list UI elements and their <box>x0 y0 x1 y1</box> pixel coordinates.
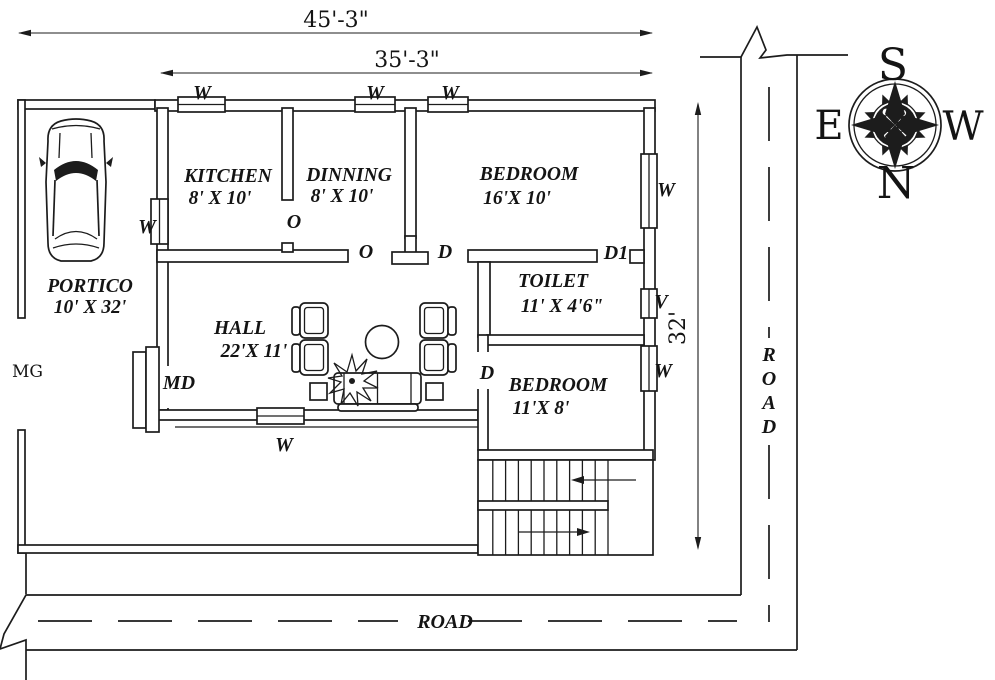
dim-overall-width-label: 45'-3" <box>303 8 369 33</box>
bedroom1-label: BEDROOM <box>479 164 579 185</box>
toilet-label: TOILET <box>518 271 589 292</box>
kitchen-label: KITCHEN <box>183 166 273 187</box>
compass-north-label: N <box>877 158 916 209</box>
arrowhead <box>640 30 653 36</box>
armchair <box>292 340 328 375</box>
hall-label: HALL <box>213 318 266 339</box>
armchair <box>292 303 328 338</box>
opening-marker: O <box>359 241 373 263</box>
opening-marker: O <box>287 211 301 233</box>
road-bottom <box>0 553 797 680</box>
arrowhead <box>18 30 31 36</box>
hall-furniture <box>292 303 456 411</box>
floor-plan: S E W N 45'-3" 35'-3" 32' KITCHEN 8' X 1… <box>0 0 995 680</box>
compass-rose: S E W N <box>814 40 983 209</box>
side-table <box>426 383 443 400</box>
compass-east-label: E <box>814 103 843 149</box>
compass-west-label: W <box>942 104 983 150</box>
road-break-top <box>700 27 848 58</box>
door-threshold <box>392 252 428 264</box>
bedroom2-label: BEDROOM <box>508 375 608 396</box>
yard-left-wall <box>18 430 25 553</box>
portico-size: 10' X 32' <box>54 297 127 318</box>
toilet-bottom-wall <box>487 335 644 345</box>
toilet-top-wall <box>468 250 597 262</box>
door1-marker: D1 <box>603 242 628 264</box>
door-marker: D <box>479 362 494 384</box>
dinning-size: 8' X 10' <box>311 186 374 207</box>
arrowhead <box>695 102 701 115</box>
wall-stub-d1 <box>630 250 644 263</box>
side-table <box>310 383 327 400</box>
road-right-letter: O <box>762 368 776 390</box>
arrowhead <box>160 70 173 76</box>
bedroom2-bottom-wall <box>478 450 653 460</box>
bedroom1-size: 16'X 10' <box>483 188 551 209</box>
armchair <box>420 340 456 375</box>
dim-inner-width-label: 35'-3" <box>374 48 440 73</box>
window-marker: W <box>193 82 212 104</box>
window-marker: W <box>138 216 157 238</box>
kitchen-dinning-wall <box>282 108 293 200</box>
main-door-marker: MD <box>162 372 195 394</box>
wall-stub <box>282 243 293 252</box>
compass-points <box>851 81 939 169</box>
hall-bottom-wall <box>157 410 478 420</box>
window-marker: W <box>441 82 460 104</box>
toilet-left-wall <box>478 262 490 337</box>
staircase <box>478 460 653 555</box>
portico-top-wall <box>18 100 155 109</box>
window-marker: W <box>275 434 294 456</box>
mirror <box>39 157 46 167</box>
arrowhead <box>695 537 701 550</box>
main-door-step <box>133 352 146 428</box>
hall-size: 22'X 11' <box>220 341 288 362</box>
floor-plan-canvas: S E W N 45'-3" 35'-3" 32' KITCHEN 8' X 1… <box>0 0 995 680</box>
dinning-label: DINNING <box>305 165 392 186</box>
sofa <box>334 373 421 411</box>
road-right-letter: A <box>760 392 775 414</box>
road-right-letter: R <box>761 344 775 366</box>
round-table <box>366 326 399 359</box>
window-marker: W <box>654 360 673 382</box>
main-gate-marker: MG <box>12 362 43 382</box>
toilet-size: 11' X 4'6" <box>521 296 603 317</box>
portico-left-wall <box>18 100 25 318</box>
dinning-right-wall <box>405 108 416 238</box>
compass-south-label: S <box>878 40 908 91</box>
dimension-side-height <box>695 102 701 550</box>
road-break-left <box>0 553 797 680</box>
yard-bottom-wall <box>18 545 478 553</box>
bedroom2-size: 11'X 8' <box>513 398 570 419</box>
windshield <box>54 161 98 181</box>
window-marker: W <box>366 82 385 104</box>
road-right-letter: D <box>761 416 776 438</box>
main-door <box>133 347 159 432</box>
car <box>39 119 113 261</box>
portico-label: PORTICO <box>46 276 133 297</box>
armchair <box>420 303 456 338</box>
road-bottom-label: ROAD <box>416 611 473 633</box>
stair-landing <box>478 501 608 510</box>
mirror <box>106 157 113 167</box>
kitchen-size: 8' X 10' <box>189 188 252 209</box>
dim-side-height-label: 32' <box>666 311 691 345</box>
door-marker: D <box>437 241 452 263</box>
window-marker: W <box>657 179 676 201</box>
kitchen-bottom-wall <box>157 250 348 262</box>
arrowhead <box>640 70 653 76</box>
ventilator-marker: V <box>654 291 669 313</box>
main-door-panel <box>146 347 159 432</box>
